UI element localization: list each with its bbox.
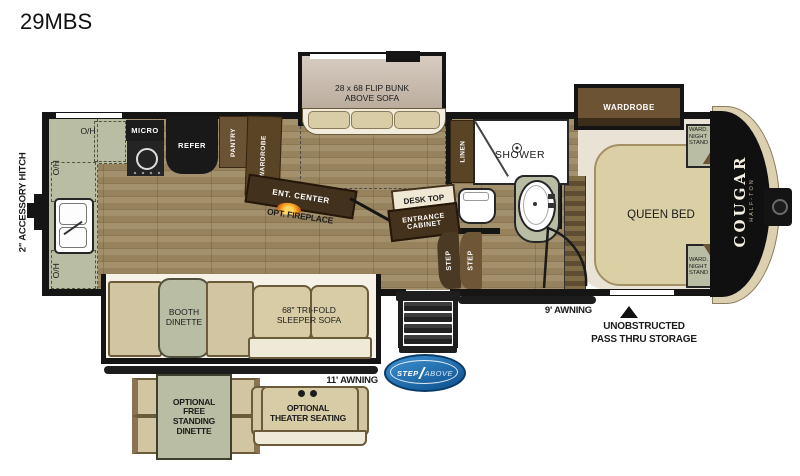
entry-step-1: STEP: [437, 231, 462, 289]
window-bedroom: [610, 290, 674, 295]
page-title: 29MBS: [20, 10, 140, 35]
kitchen-sink-bowl-2: [59, 227, 87, 248]
entry-step-tread-4: [404, 335, 452, 344]
stepabove-logo-ring: [390, 360, 458, 384]
pass-thru-label-1: UNOBSTRUCTED: [580, 321, 708, 332]
queen-bed-label: QUEEN BED: [627, 209, 695, 222]
toilet-tank: [463, 192, 489, 201]
entry-steps-platform: [396, 291, 460, 301]
refrigerator: REFER: [166, 116, 218, 174]
linen-label: LINEN: [459, 141, 466, 163]
theater-label-l2: THEATER SEATING: [256, 414, 360, 424]
refrigerator-label: REFER: [178, 141, 206, 150]
theater-label: OPTIONAL THEATER SEATING: [256, 404, 360, 423]
awning-9-label: 9' AWNING: [520, 306, 592, 317]
floorplan-canvas: 29MBS 2" ACCESSORY HITCH O/H O/H O/H MIC…: [0, 0, 800, 476]
entry-steps-base: [399, 346, 457, 353]
wall-bottom-3: [450, 289, 734, 296]
theater-cupholder-2-icon: [310, 390, 317, 397]
entry-step-1-label: STEP: [445, 250, 453, 271]
vanity-drain-icon: [533, 202, 537, 206]
wall-top-2: [444, 112, 581, 119]
sofa-cushion-3: [394, 111, 440, 129]
oh-label-top: O/H: [62, 127, 114, 137]
brand-label: COUGAR: [731, 149, 749, 253]
dinette-bench-right: [206, 281, 254, 357]
booth-dinette-label-2: DINETTE: [166, 318, 202, 328]
booth-dinette-table: BOOTH DINETTE: [158, 278, 210, 358]
burner-icon: [136, 148, 158, 170]
window-kitchen: [56, 113, 122, 118]
brand-sub-label: HALF-TON: [749, 150, 755, 250]
entry-steps-rail-left: [398, 300, 403, 348]
door-swing: [528, 226, 590, 292]
dinette-bench-left: [108, 281, 162, 357]
microwave: MICRO: [126, 120, 164, 141]
kingpin-circle-icon: [772, 199, 788, 215]
kitchen-sink-bowl-1: [59, 203, 87, 225]
pass-thru-label-2: PASS THRU STORAGE: [572, 334, 716, 345]
opt-dinette-l4: DINETTE: [177, 427, 212, 437]
awning-9-bar: [458, 296, 596, 304]
entry-steps-rail-right: [453, 300, 458, 348]
pantry: PANTRY: [219, 116, 248, 168]
entry-step-2: STEP: [460, 232, 482, 289]
vanity-faucet-icon-1: [548, 194, 555, 199]
entry-step-2-label: STEP: [467, 250, 474, 270]
pantry-label: PANTRY: [230, 128, 237, 157]
oh-label-left-upper: O/H: [52, 144, 62, 192]
sofa-cushion-1: [308, 111, 350, 129]
shower-label: SHOWER: [478, 150, 562, 162]
flip-bunk-window: [310, 54, 386, 59]
entry-step-tread-1: [404, 302, 452, 311]
theater-cupholder-1-icon: [298, 390, 305, 397]
rear-hitch-arm-icon: [27, 203, 35, 218]
sofa-label-l2: SLEEPER SOFA: [256, 316, 362, 326]
bedroom-wardrobe-label: WARDROBE: [603, 103, 655, 112]
sofa-seat: [248, 337, 372, 359]
sofa-cushion-2: [351, 111, 393, 129]
range-knobs-icon: [131, 171, 161, 175]
bedroom-wardrobe-slide: WARDROBE: [574, 84, 684, 130]
sofa-label: 68" TRI-FOLD SLEEPER SOFA: [256, 306, 362, 325]
linen-cabinet: LINEN: [450, 120, 475, 183]
entry-step-tread-3: [404, 324, 452, 333]
microwave-label: MICRO: [131, 126, 159, 135]
awning-11-bar: [104, 366, 378, 374]
theater-front: [253, 430, 367, 446]
opt-dinette-table: OPTIONAL FREE STANDING DINETTE: [156, 374, 232, 460]
wardrobe-cabinet-label: WARDROBE: [259, 135, 267, 178]
flip-bunk-cap: [386, 51, 420, 62]
flip-bunk-label-2: ABOVE SOFA: [302, 94, 442, 104]
entry-step-tread-2: [404, 313, 452, 322]
wall-left: [42, 112, 49, 296]
pass-thru-arrow-icon: [620, 306, 638, 318]
stepabove-logo: STEP ABOVE: [384, 354, 466, 392]
vanity-faucet-icon-2: [548, 203, 555, 208]
